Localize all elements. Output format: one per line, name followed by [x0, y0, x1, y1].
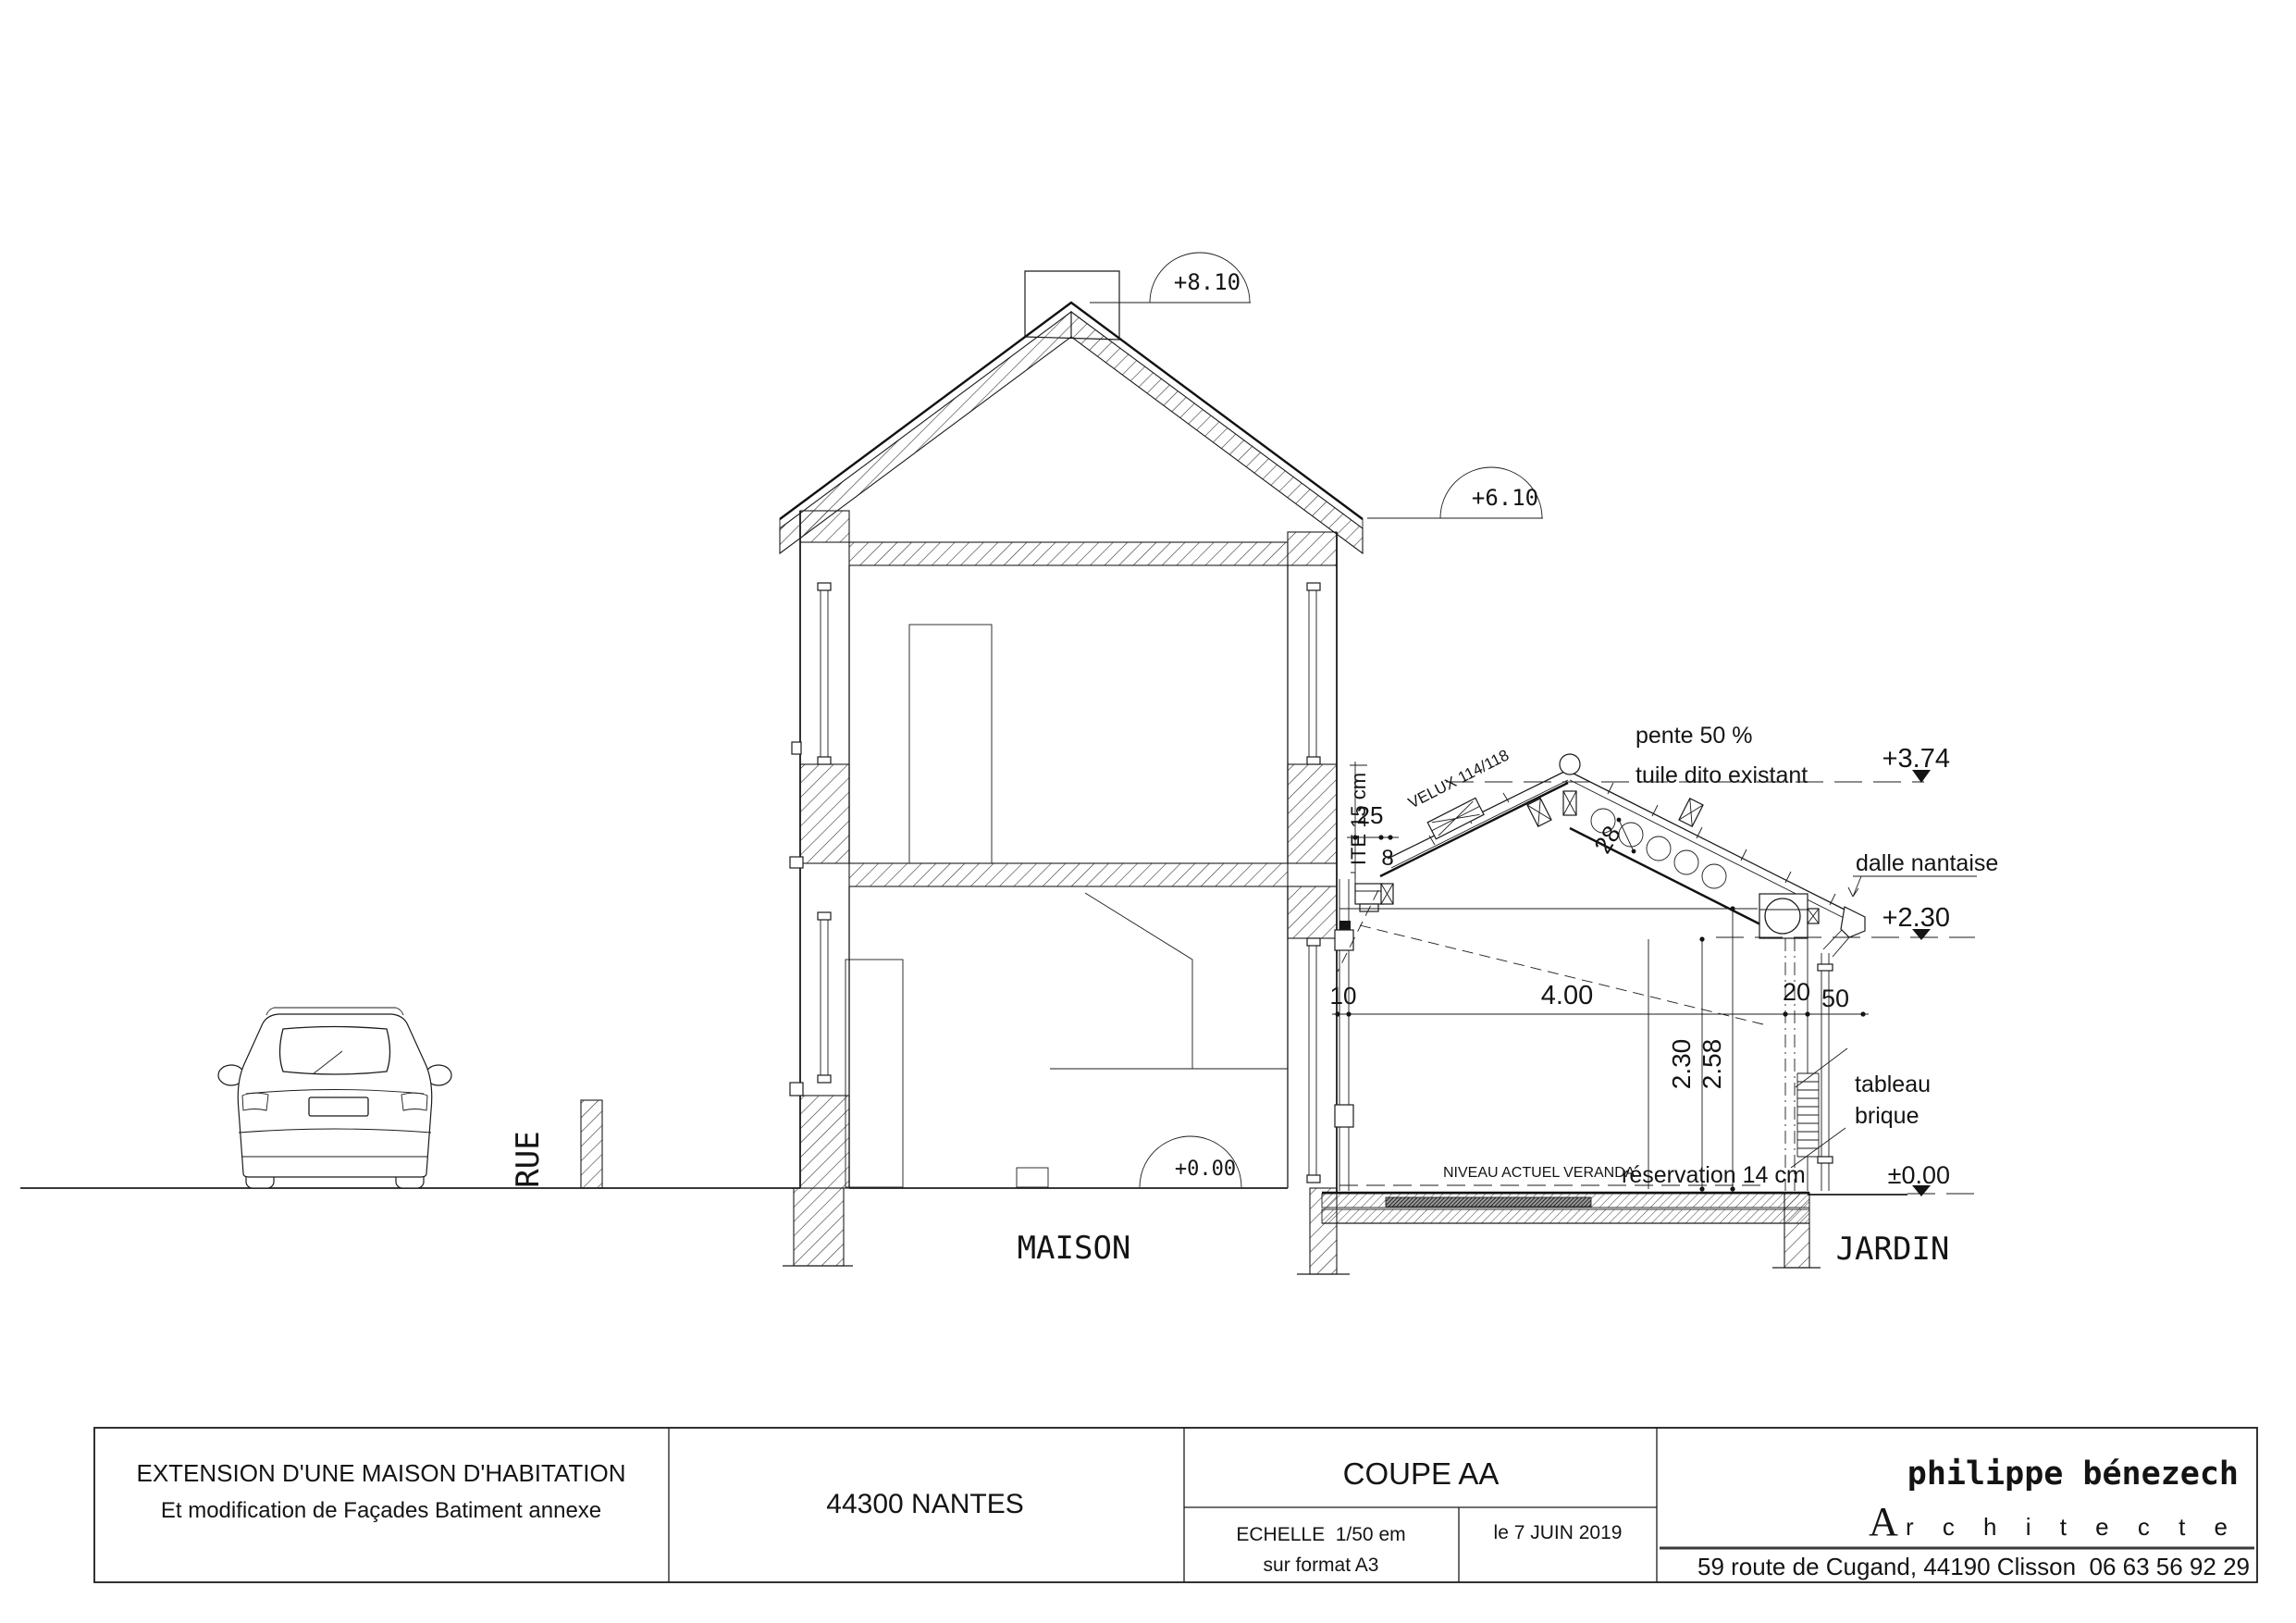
scale-line1: ECHELLE 1/50 em [1236, 1524, 1405, 1545]
tuile-label: tuile dito existant [1636, 762, 1808, 788]
attic-floor-slab [849, 542, 1288, 565]
right-gf-door [1307, 938, 1320, 1183]
view-title: COUPE AA [1343, 1456, 1500, 1491]
right-spandrel [1288, 764, 1337, 863]
dalle-nantaise-note: dalle nantaise [1848, 850, 1998, 897]
architect-name: philippe bénezech [1907, 1456, 2239, 1493]
level-0-label: +0.00 [1175, 1158, 1236, 1181]
veranda-slab [1322, 1193, 1821, 1268]
scale-line2: sur format A3 [1264, 1555, 1379, 1576]
drawing-sheet: RUE [0, 0, 2296, 1623]
purlin-left [1527, 799, 1551, 826]
purlin-ridge [1563, 791, 1576, 815]
veranda-right-wall: tableau brique [1785, 938, 1931, 1191]
fascia-gutter [1818, 907, 1865, 1191]
stair-and-counter [1050, 893, 1288, 1069]
dim-25-label: 25 [1357, 801, 1384, 829]
dim-vertical: 2.30 2.58 [1648, 906, 1735, 1191]
dalle-nantaise-fascia [1841, 907, 1865, 937]
level-374-label: +3.74 [1882, 744, 1950, 774]
veranda-extension: ITE 15 cm 25 8 [1322, 723, 1998, 1268]
rue-label: RUE [510, 1131, 547, 1187]
gf-interior-door [846, 960, 903, 1187]
left-wall [783, 511, 853, 1266]
dim-50-label: 50 [1821, 985, 1849, 1012]
cell-project: EXTENSION D'UNE MAISON D'HABITATION Et m… [136, 1459, 625, 1523]
tableau-label: tableau [1855, 1072, 1931, 1097]
pente-label: pente 50 % [1636, 723, 1753, 749]
dalle-label: dalle nantaise [1856, 850, 1998, 876]
title-block: EXTENSION D'UNE MAISON D'HABITATION Et m… [94, 1428, 2257, 1582]
brick-jamb [1797, 1073, 1819, 1157]
project-title-line2: Et modification de Façades Batiment anne… [161, 1498, 601, 1523]
right-ff-window [1307, 583, 1320, 764]
city-label: 44300 NANTES [826, 1489, 1023, 1519]
cheneau-assembly [1339, 873, 1393, 930]
right-wall [1288, 532, 1350, 1274]
architect-title-initial: A [1869, 1499, 1898, 1544]
dim-230-label: 2.30 [1667, 1039, 1696, 1090]
left-sill-ledge-lower [790, 1083, 803, 1096]
dalle-leader-arrow [1848, 876, 1861, 897]
velux-window [1427, 798, 1484, 838]
level-610: +6.10 [1367, 467, 1543, 518]
car [218, 1008, 451, 1188]
left-ground-pier [800, 1096, 849, 1188]
left-ledge-slab [790, 857, 803, 868]
purlin-right [1679, 799, 1703, 826]
cell-architect: philippe bénezech Ar c h i t e c t e 59 … [1660, 1456, 2254, 1580]
velux-label: VELUX 114/118 [1405, 746, 1512, 811]
left-ff-window [792, 583, 831, 764]
cell-view: COUPE AA ECHELLE 1/50 em sur format A3 l… [1236, 1456, 1622, 1576]
level-pm0-label: ±0.00 [1888, 1161, 1950, 1189]
dim-400-label: 4.00 [1541, 981, 1593, 1010]
maison-roof [780, 303, 1363, 553]
left-spandrel [800, 764, 849, 863]
pipe-collar-bottom [1818, 1157, 1833, 1163]
niveau-label: NIVEAU ACTUEL VERANDA [1443, 1165, 1636, 1181]
level-pm0-marker [1912, 1185, 1931, 1196]
pipe-collar-top [1818, 964, 1833, 971]
level-230-marker [1912, 929, 1931, 940]
level-810-label: +8.10 [1174, 269, 1241, 295]
cell-city: 44300 NANTES [826, 1489, 1023, 1519]
dim-10-label: 10 [1330, 982, 1357, 1010]
maison-label: MAISON [1018, 1230, 1131, 1267]
reservation-strip [1386, 1197, 1591, 1207]
maison-section: +0.00 +8.10 +6.10 MAISON [780, 253, 1543, 1274]
architect-title: Ar c h i t e c t e [1869, 1499, 2239, 1544]
roof-left-band [780, 312, 1071, 553]
coupe-aa-drawing: RUE [0, 0, 2296, 1623]
street-post [581, 1100, 602, 1188]
ff-interior-door [909, 625, 992, 863]
project-title-line1: EXTENSION D'UNE MAISON D'HABITATION [136, 1459, 625, 1487]
dim-20-label: 20 [1783, 978, 1810, 1006]
left-sill-ledge-upper [792, 742, 801, 754]
level-230-label: +2.30 [1882, 903, 1950, 933]
street-scene: RUE [20, 1008, 800, 1188]
left-foundation [794, 1188, 844, 1266]
left-gf-window [790, 912, 831, 1096]
reservation-label: réservation 14 cm [1622, 1162, 1806, 1188]
maison-interior: +0.00 [846, 625, 1288, 1188]
tile-ticks-right [1608, 783, 1835, 905]
architect-title-rest: r c h i t e c t e [1906, 1513, 2239, 1541]
step-block [1017, 1168, 1048, 1187]
brique-label: brique [1855, 1103, 1920, 1129]
level-610-label: +6.10 [1472, 485, 1538, 511]
veranda-right-pier [1784, 1193, 1809, 1268]
level-pm0: ±0.00 [1888, 1161, 1950, 1196]
first-floor-slab [849, 863, 1288, 886]
level-374-marker [1912, 770, 1931, 783]
dim-258-label: 2.58 [1697, 1039, 1726, 1090]
plate-section-left [1381, 884, 1393, 904]
jardin-label: JARDIN [1836, 1231, 1950, 1268]
right-lintel-pier [1288, 886, 1337, 938]
right-gable-pier [1288, 532, 1337, 565]
date-label: le 7 JUIN 2019 [1494, 1522, 1623, 1543]
dim-28: 28 [1588, 818, 1636, 859]
car-body [238, 1014, 432, 1177]
architect-address: 59 route de Cugand, 44190 Clisson 06 63 … [1697, 1553, 2250, 1580]
ridge-finial [1560, 754, 1580, 774]
roof-right-band [1071, 312, 1363, 553]
